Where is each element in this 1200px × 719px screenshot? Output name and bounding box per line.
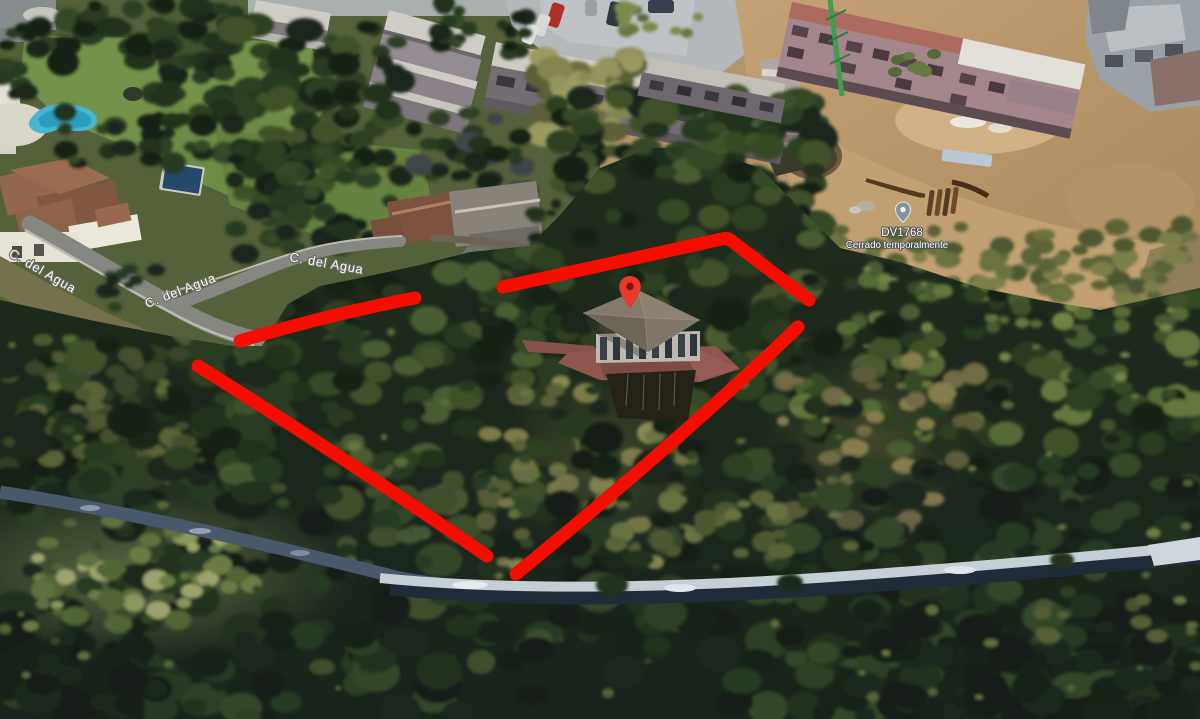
svg-text:Cerrado temporalmente: Cerrado temporalmente: [846, 240, 948, 251]
svg-text:DV1768: DV1768: [881, 227, 923, 239]
